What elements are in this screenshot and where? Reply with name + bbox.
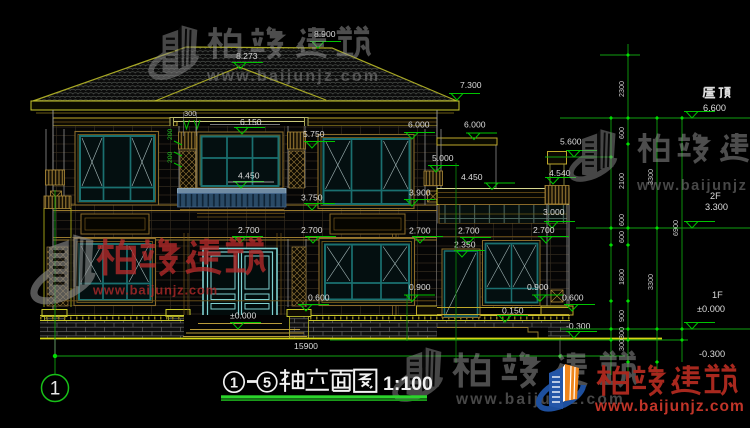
svg-text:1F: 1F [712,290,723,300]
svg-text:2100: 2100 [617,173,626,189]
svg-text:200: 200 [167,151,174,163]
svg-text:300: 300 [184,109,196,118]
svg-text:0.900: 0.900 [527,282,549,292]
svg-text:0.900: 0.900 [409,282,431,292]
svg-text:6.150: 6.150 [240,117,262,127]
svg-text:5.600: 5.600 [560,137,582,147]
svg-text:900: 900 [617,310,626,322]
svg-text:1: 1 [230,376,238,392]
svg-text:2300: 2300 [617,81,626,97]
svg-text:2.700: 2.700 [533,225,555,235]
svg-text:0.600: 0.600 [562,293,584,303]
svg-text:±0.000: ±0.000 [697,304,725,314]
svg-text:5.000: 5.000 [432,153,454,163]
svg-text:2.700: 2.700 [301,225,323,235]
svg-text:3300: 3300 [646,274,655,290]
svg-text:5: 5 [263,376,271,392]
svg-text:6.000: 6.000 [408,120,430,130]
svg-text:600: 600 [617,231,626,243]
svg-text:2.700: 2.700 [238,225,260,235]
svg-text:-0.300: -0.300 [566,321,591,331]
svg-text:1:100: 1:100 [383,373,433,395]
svg-text:±0.000: ±0.000 [230,311,256,321]
svg-text:300: 300 [617,327,626,339]
svg-text:7.300: 7.300 [460,80,482,90]
svg-text:4.450: 4.450 [461,172,483,182]
svg-text:3.900: 3.900 [409,188,431,198]
svg-text:3.300: 3.300 [705,202,728,212]
svg-text:2.700: 2.700 [409,226,431,236]
svg-text:3.750: 3.750 [301,193,323,203]
svg-text:6900: 6900 [671,220,680,236]
svg-text:4.540: 4.540 [549,168,571,178]
svg-text:1800: 1800 [617,269,626,285]
svg-text:-0.300: -0.300 [699,349,725,359]
svg-text:6.000: 6.000 [464,120,486,130]
svg-text:2.700: 2.700 [458,226,480,236]
svg-text:0.600: 0.600 [308,293,330,303]
svg-text:www.baijunjz.com: www.baijunjz.com [92,283,218,298]
svg-text:15900: 15900 [294,341,318,351]
svg-text:www.baijunjz.com: www.baijunjz.com [594,398,745,415]
svg-text:3.000: 3.000 [543,207,565,217]
svg-text:2.350: 2.350 [454,240,476,250]
svg-text:200: 200 [167,128,174,140]
svg-text:www.baijunjz: www.baijunjz [636,178,748,194]
svg-text:1: 1 [50,379,61,400]
svg-text:600: 600 [617,214,626,226]
svg-text:300: 300 [617,339,626,351]
svg-text:600: 600 [617,127,626,139]
svg-text:www.baijunjz.com: www.baijunjz.com [206,68,380,85]
svg-text:6.600: 6.600 [703,103,726,113]
svg-text:0.150: 0.150 [502,306,524,316]
svg-text:5.750: 5.750 [303,129,325,139]
svg-text:4.450: 4.450 [238,171,260,181]
